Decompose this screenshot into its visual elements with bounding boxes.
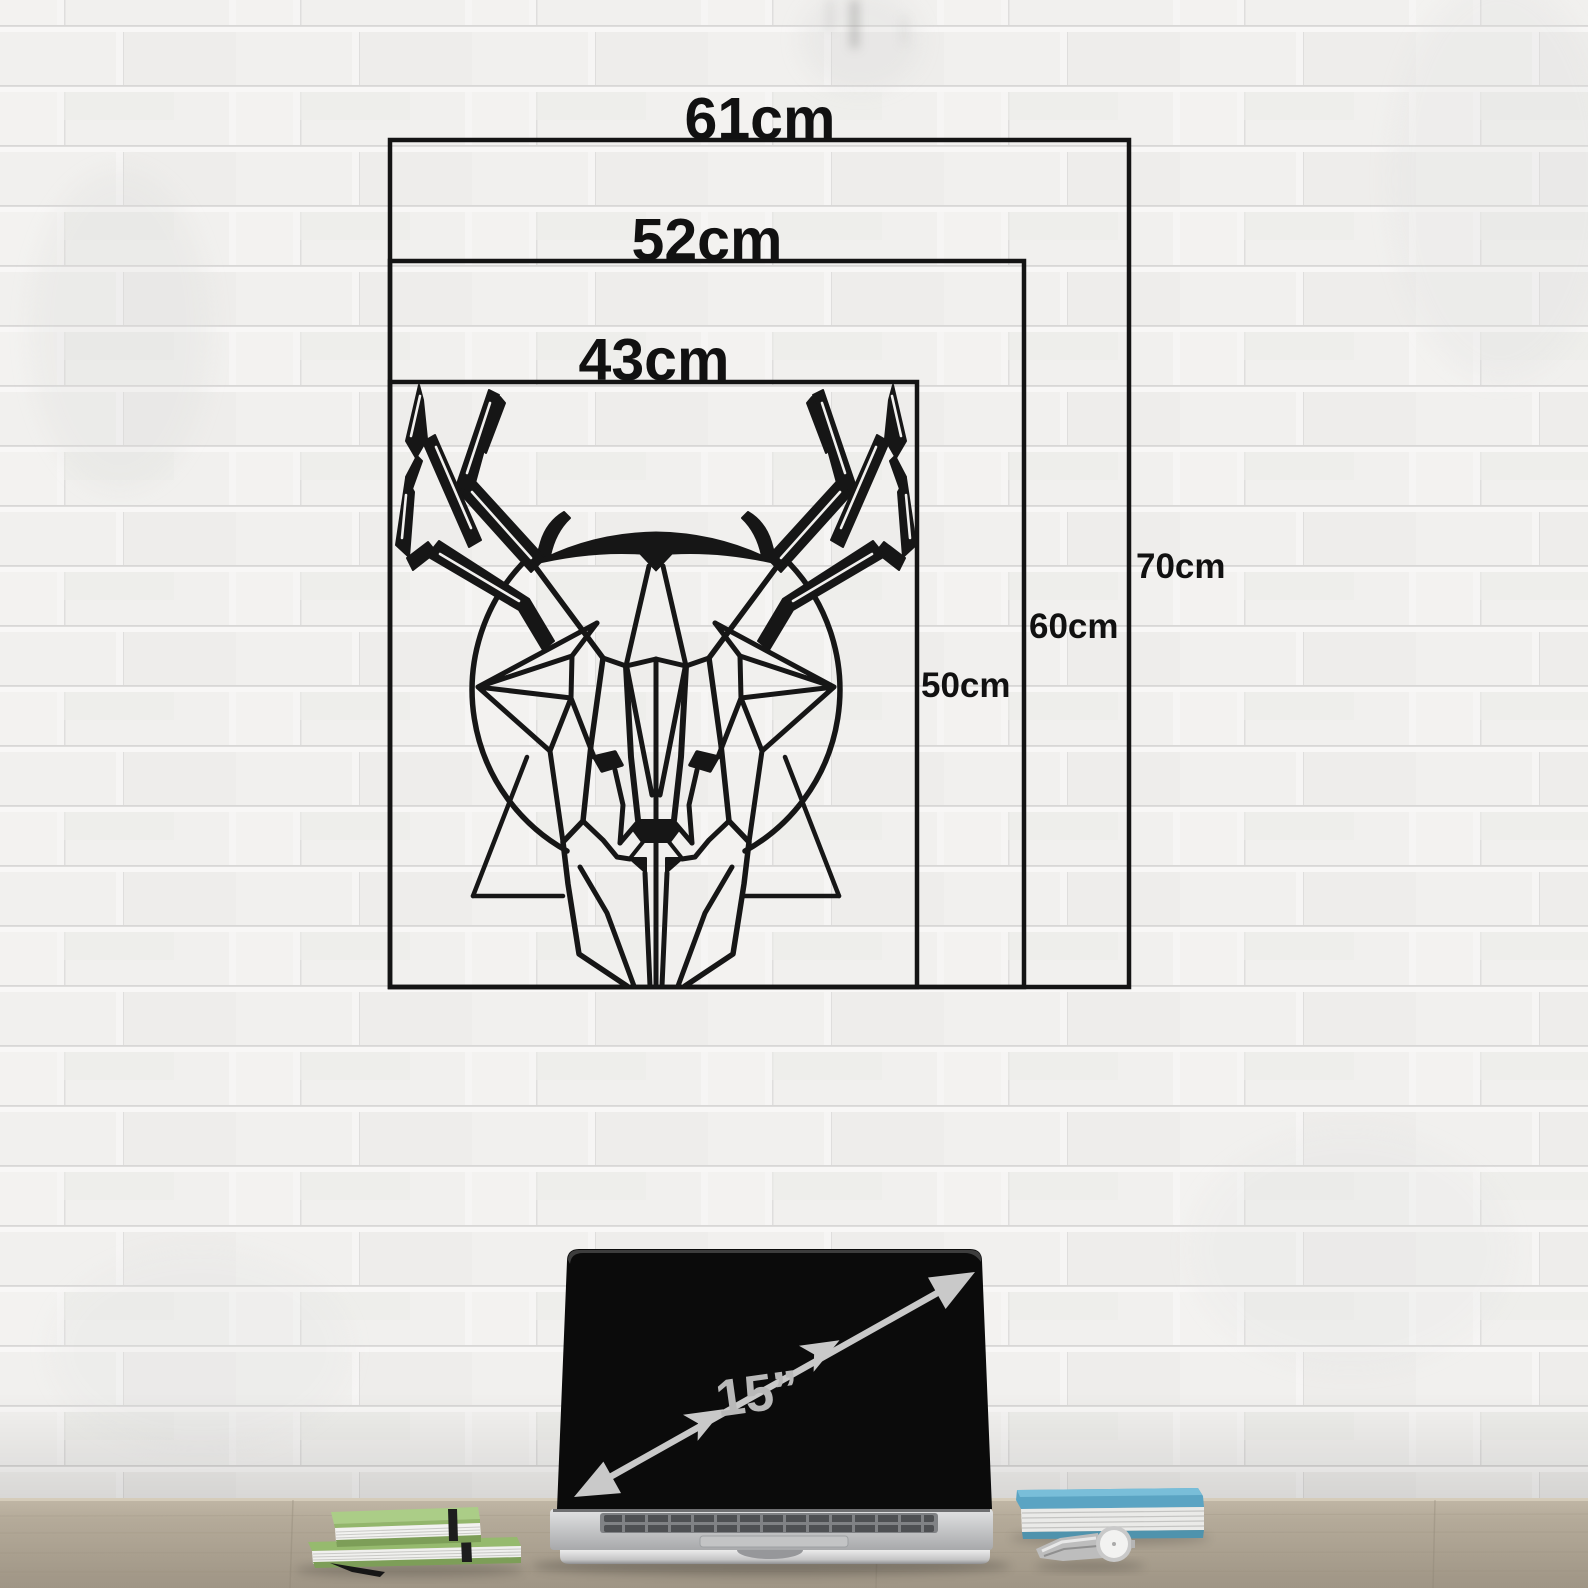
svg-text:61cm: 61cm xyxy=(685,86,836,152)
svg-text:52cm: 52cm xyxy=(632,207,783,273)
svg-text:50cm: 50cm xyxy=(921,666,1011,705)
svg-text:43cm: 43cm xyxy=(579,327,730,393)
svg-text:70cm: 70cm xyxy=(1136,547,1226,586)
svg-text:60cm: 60cm xyxy=(1029,607,1119,646)
svg-text:15”: 15” xyxy=(712,1360,803,1429)
